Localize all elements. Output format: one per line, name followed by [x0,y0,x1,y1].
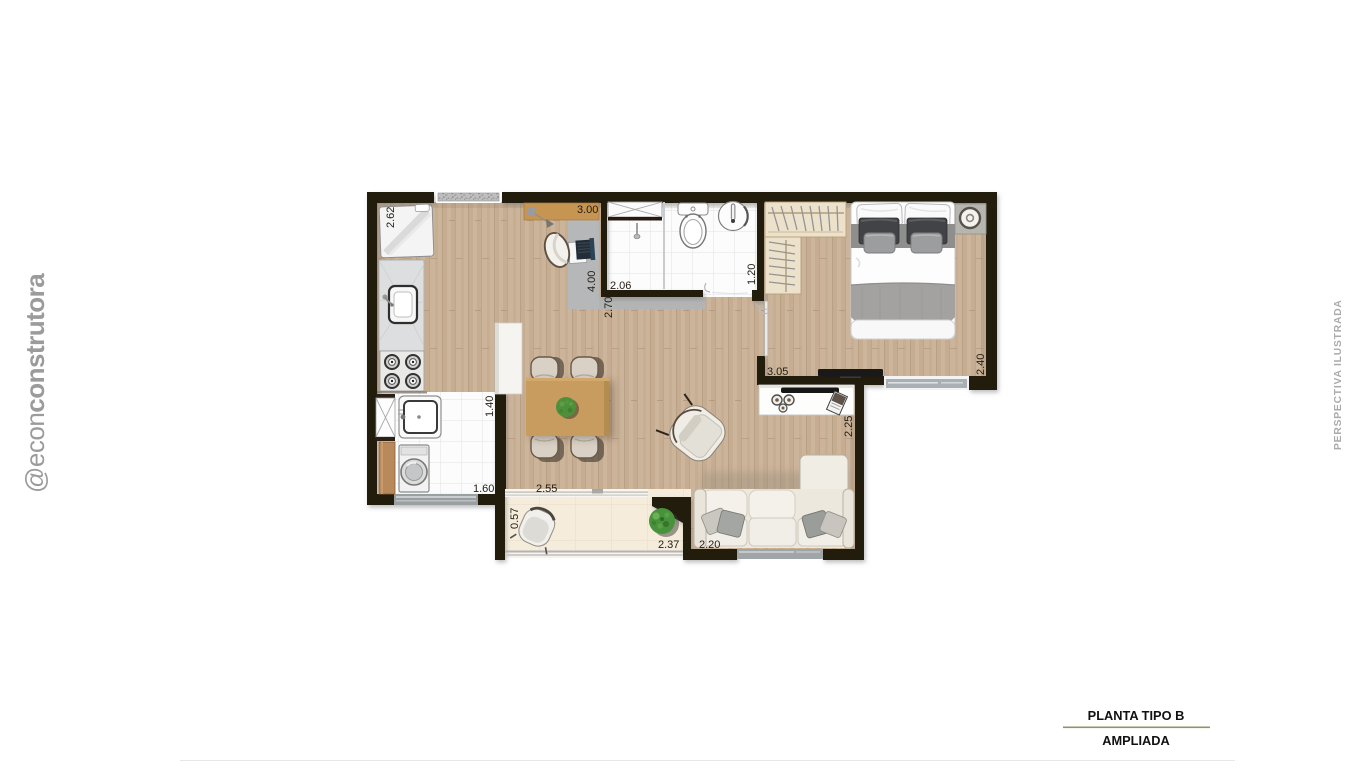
svg-text:1.40: 1.40 [484,396,496,417]
svg-text:0.57: 0.57 [509,508,521,529]
svg-text:1.60: 1.60 [473,483,494,495]
svg-text:2.37: 2.37 [658,539,679,551]
svg-text:AMPLIADA: AMPLIADA [1102,733,1170,748]
svg-text:2.55: 2.55 [536,483,557,495]
svg-text:2.62: 2.62 [385,207,397,228]
svg-text:2.06: 2.06 [610,280,631,292]
svg-text:2.20: 2.20 [699,539,720,551]
svg-text:2.40: 2.40 [975,354,987,375]
svg-text:1.20: 1.20 [746,264,758,285]
svg-text:PLANTA TIPO B: PLANTA TIPO B [1088,708,1185,723]
svg-text:3.00: 3.00 [577,204,598,216]
svg-text:2.70: 2.70 [603,297,615,318]
svg-text:2.25: 2.25 [843,416,855,437]
svg-text:@econconstrutora: @econconstrutora [20,273,50,493]
svg-text:3.05: 3.05 [767,366,788,378]
svg-text:PERSPECTIVA ILUSTRADA: PERSPECTIVA ILUSTRADA [1333,299,1344,450]
svg-text:4.00: 4.00 [586,271,598,292]
